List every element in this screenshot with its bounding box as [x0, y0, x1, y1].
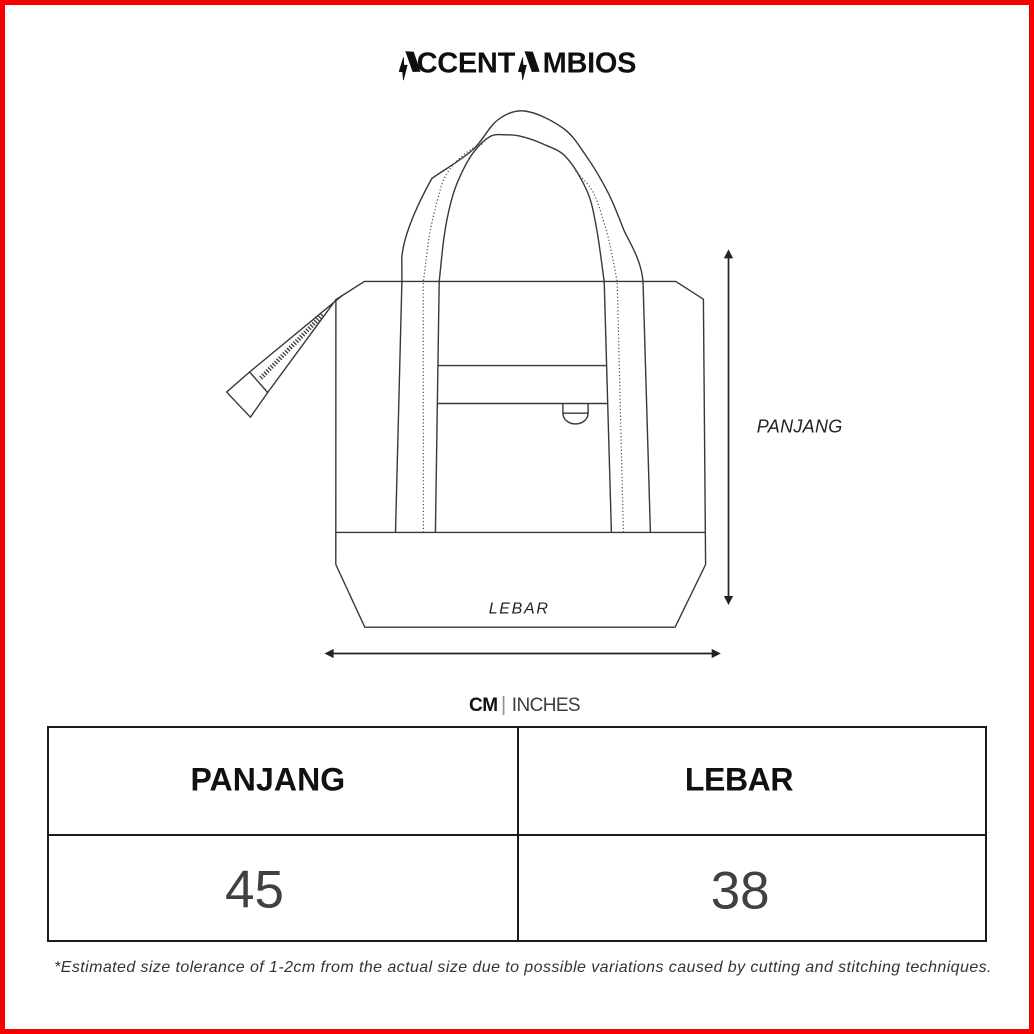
svg-text:LEBAR: LEBAR: [489, 601, 550, 618]
svg-text:INCHES: INCHES: [512, 695, 580, 716]
svg-text:MBIOS: MBIOS: [543, 48, 637, 80]
svg-text:CM: CM: [469, 695, 498, 716]
svg-text:|: |: [501, 694, 506, 716]
svg-text:PANJANG: PANJANG: [757, 416, 843, 436]
svg-text:CCENT: CCENT: [417, 48, 516, 80]
